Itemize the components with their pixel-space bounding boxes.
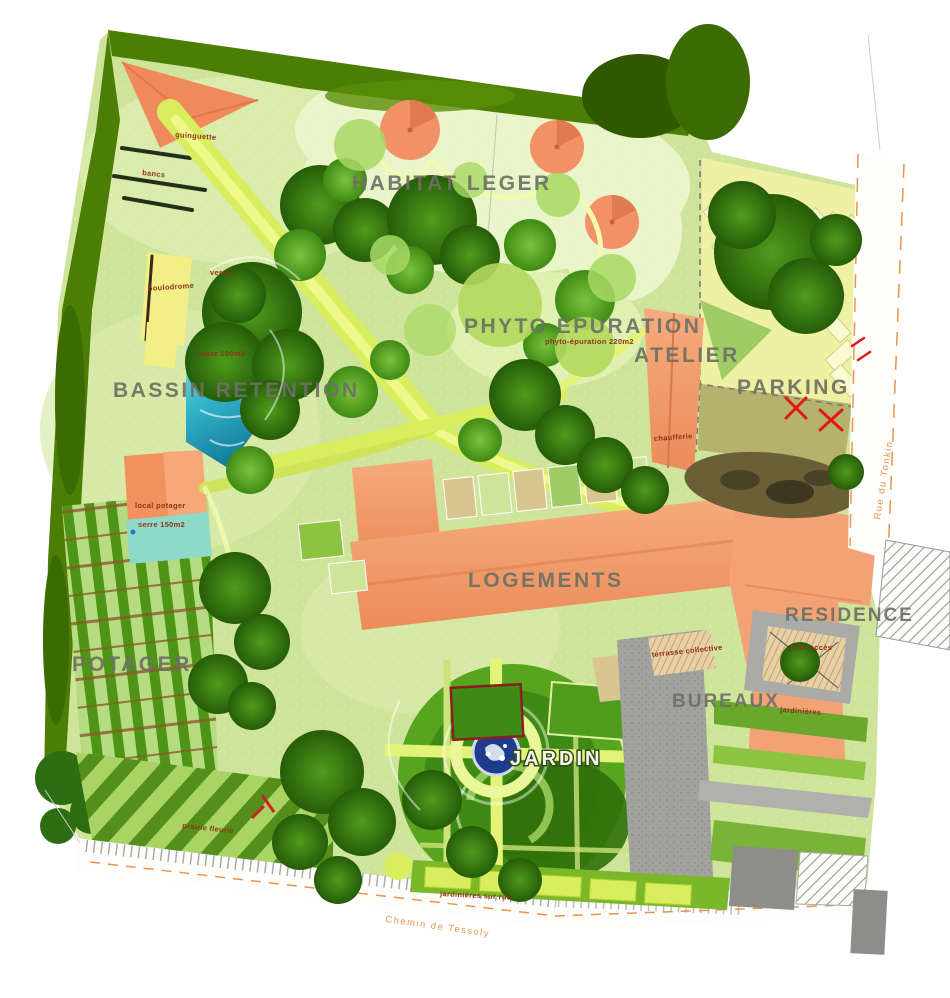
label-jardin: JARDIN (510, 748, 602, 770)
label-parking: PARKING (737, 376, 850, 399)
red-outlined-bed (451, 684, 524, 740)
label-phyto-epuration: PHYTO EPURATION (464, 315, 701, 338)
label-cour-acces: cour accès (790, 643, 832, 652)
gray-building-block (729, 846, 798, 910)
label-bassin-retention: BASSIN RETENTION (113, 379, 360, 402)
site-plan-svg: guinguette bancs verger boulodrome mare … (0, 0, 950, 998)
label-local-potager: local potager (135, 501, 186, 510)
label-serre: serre 150m2 (138, 520, 185, 529)
site-plan-canvas: guinguette bancs verger boulodrome mare … (0, 0, 950, 998)
label-atelier: ATELIER (634, 344, 740, 367)
hatched-block (876, 540, 950, 650)
label-habitat-leger: HABITAT LEGER (352, 172, 552, 195)
label-logements: LOGEMENTS (468, 569, 624, 592)
label-mare: mare 100m2 (199, 349, 245, 358)
label-verger: verger (210, 268, 235, 277)
label-phyto-surface: phyto-épuration 220m2 (545, 337, 634, 346)
label-residence: RESIDENCE (785, 605, 914, 626)
label-potager: POTAGER (72, 653, 192, 676)
label-bureaux: BUREAUX (672, 691, 780, 712)
